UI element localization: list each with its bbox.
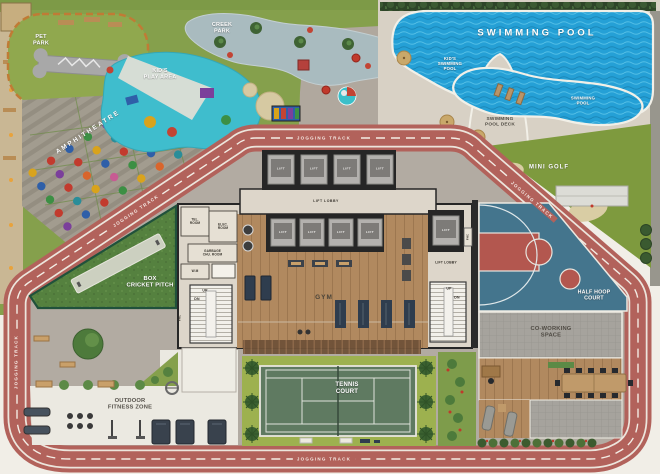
lift-bank-1	[262, 150, 396, 190]
fhc-closet	[464, 228, 472, 246]
lift-bank-2	[266, 214, 384, 252]
amenity-site-plan: PET PARK CREEK PARK KID'S PLAY AREA AMPH…	[0, 0, 660, 474]
beach-ball	[338, 87, 356, 105]
planted-strip	[438, 352, 476, 446]
trampoline	[272, 106, 300, 121]
hedge-strip	[380, 2, 656, 11]
tree-row	[641, 225, 652, 264]
left-tower-base	[182, 348, 236, 392]
co-working-space	[478, 312, 634, 448]
site-plan-drawing	[0, 0, 660, 474]
desk	[482, 366, 500, 377]
tennis-court-zone	[242, 356, 436, 446]
playhouse	[298, 60, 309, 70]
lift-lobby	[240, 189, 436, 214]
pergola	[243, 340, 421, 354]
plan-canvas: PET PARK CREEK PARK KID'S PLAY AREA AMPH…	[0, 0, 660, 474]
left-staircase	[190, 285, 232, 343]
hedge-row	[478, 439, 597, 448]
